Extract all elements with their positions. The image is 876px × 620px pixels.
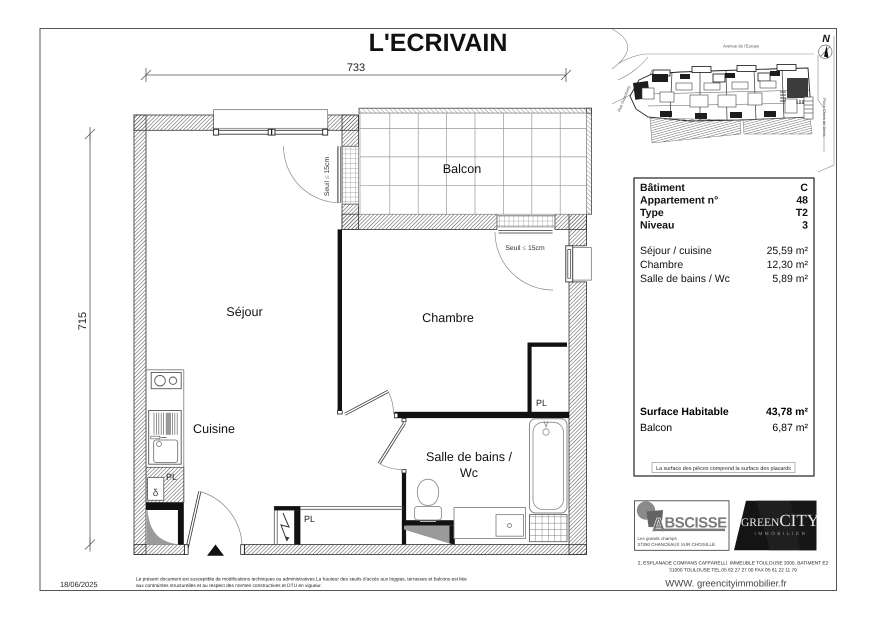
svg-text:Les grands champs: Les grands champs bbox=[638, 536, 678, 541]
svg-text:N: N bbox=[822, 33, 830, 45]
svg-text:Appartement n°: Appartement n° bbox=[640, 195, 718, 207]
svg-text:Chambre: Chambre bbox=[640, 259, 683, 271]
svg-text:37390 CHANCEAUX SUR CHOISILLE: 37390 CHANCEAUX SUR CHOISILLE bbox=[638, 542, 716, 547]
svg-text:Le présent document est suscep: Le présent document est susceptible de m… bbox=[136, 577, 467, 583]
svg-text:PL: PL bbox=[304, 514, 315, 524]
svg-text:Cuisine: Cuisine bbox=[193, 422, 235, 436]
svg-text:48: 48 bbox=[796, 195, 808, 207]
svg-text:L'ECRIVAIN: L'ECRIVAIN bbox=[369, 29, 508, 57]
svg-text:5,89 m²: 5,89 m² bbox=[772, 273, 808, 285]
svg-text:31000 TOULOUSE TEL.05 62: 31000 TOULOUSE TEL.05 62 27 27 00 FAX 05… bbox=[669, 568, 797, 574]
svg-text:Balcon: Balcon bbox=[640, 422, 672, 434]
svg-text:3: 3 bbox=[802, 220, 808, 232]
svg-text:A: A bbox=[652, 515, 666, 537]
svg-text:aux contraintes structurelles: aux contraintes structurelles et au resp… bbox=[136, 583, 322, 589]
svg-text:2, ESPLANADE COMPANS CAFFARELL: 2, ESPLANADE COMPANS CAFFARELLI. IMMEUBL… bbox=[638, 561, 829, 567]
svg-text:18/06/2025: 18/06/2025 bbox=[60, 580, 98, 589]
svg-text:43,78 m²: 43,78 m² bbox=[766, 406, 809, 418]
svg-text:Niveau: Niveau bbox=[640, 220, 674, 232]
svg-text:Bâtiment: Bâtiment bbox=[640, 182, 685, 194]
svg-text:733: 733 bbox=[347, 62, 365, 74]
svg-text:Place Chem de Denis: Place Chem de Denis bbox=[822, 98, 827, 137]
svg-text:Séjour: Séjour bbox=[226, 305, 262, 319]
svg-text:Chambre: Chambre bbox=[422, 311, 474, 325]
svg-text:Wc: Wc bbox=[460, 466, 478, 480]
svg-text:25,59 m²: 25,59 m² bbox=[767, 245, 809, 257]
svg-text:Seuil ≤ 15cm: Seuil ≤ 15cm bbox=[505, 245, 545, 252]
svg-text:Type: Type bbox=[640, 207, 664, 219]
svg-text:Balcon: Balcon bbox=[443, 162, 482, 176]
svg-text:PL: PL bbox=[536, 398, 547, 408]
svg-text:6,87 m²: 6,87 m² bbox=[772, 422, 808, 434]
svg-text:Surface Habitable: Surface Habitable bbox=[640, 406, 729, 418]
svg-text:C: C bbox=[800, 182, 808, 194]
svg-text:Seuil ≤ 15cm: Seuil ≤ 15cm bbox=[324, 157, 331, 197]
svg-text:IMMOBILIER: IMMOBILIER bbox=[754, 531, 807, 536]
svg-text:La surface des pièces comprend: La surface des pièces comprend la surfac… bbox=[656, 466, 791, 472]
svg-text:T2: T2 bbox=[796, 207, 808, 219]
svg-text:Salle de bains /: Salle de bains / bbox=[426, 450, 513, 464]
svg-text:Séjour / cuisine: Séjour / cuisine bbox=[640, 245, 712, 257]
svg-text:δ: δ bbox=[153, 488, 159, 499]
svg-text:715: 715 bbox=[77, 312, 89, 330]
svg-text:Avenue de l'Europe: Avenue de l'Europe bbox=[723, 44, 760, 49]
svg-text:WWW. greencityimmobilier.fr: WWW. greencityimmobilier.fr bbox=[665, 579, 786, 590]
svg-text:12,30 m²: 12,30 m² bbox=[767, 259, 809, 271]
svg-text:PL: PL bbox=[166, 472, 177, 482]
svg-text:Salle de bains / Wc: Salle de bains / Wc bbox=[640, 273, 730, 285]
